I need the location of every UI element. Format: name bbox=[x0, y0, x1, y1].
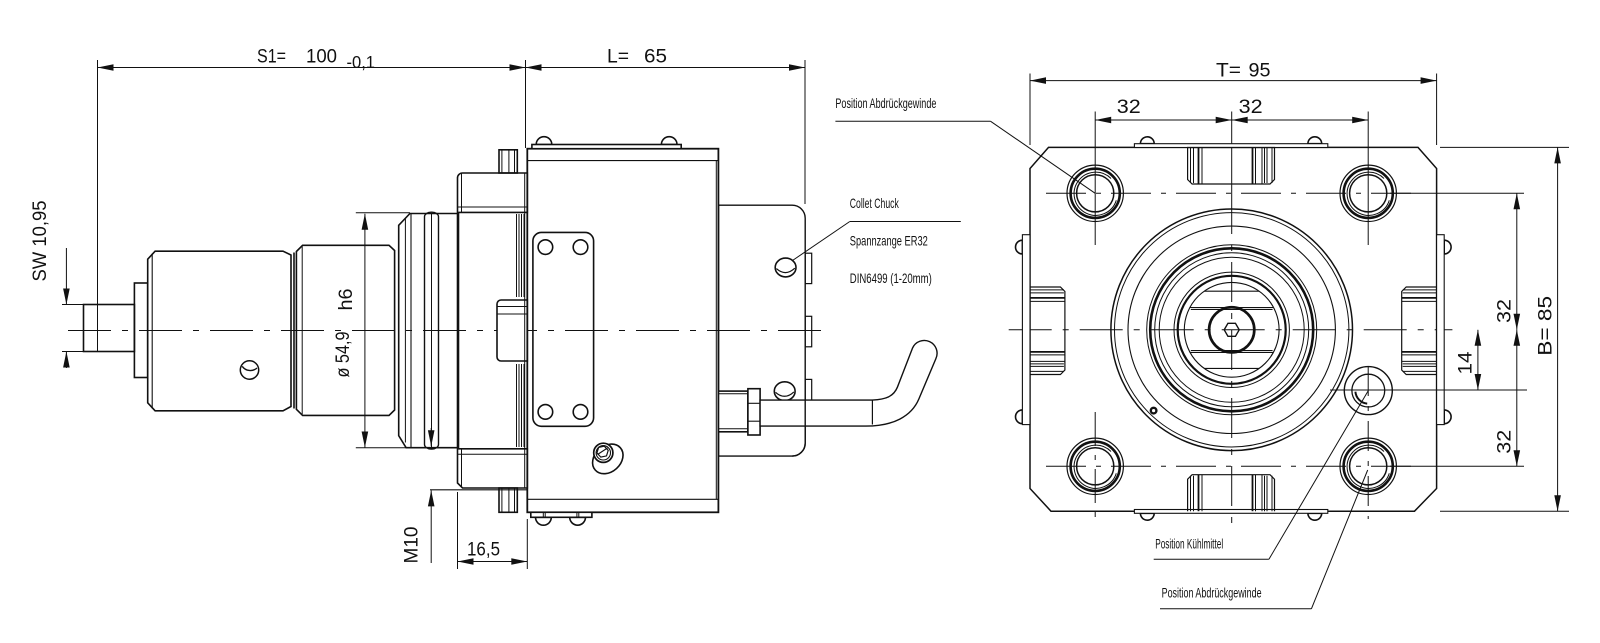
svg-text:L=: L= bbox=[607, 46, 629, 68]
svg-text:16,5: 16,5 bbox=[467, 540, 500, 561]
svg-text:-0,1: -0,1 bbox=[347, 52, 376, 72]
svg-text:95: 95 bbox=[1249, 60, 1271, 82]
svg-text:32: 32 bbox=[1494, 299, 1516, 323]
svg-text:100: 100 bbox=[306, 46, 337, 68]
svg-text:14: 14 bbox=[1455, 351, 1477, 374]
svg-text:S1=: S1= bbox=[257, 46, 286, 68]
svg-text:h6: h6 bbox=[336, 289, 357, 311]
svg-text:Position Abdrückgewinde: Position Abdrückgewinde bbox=[1162, 585, 1262, 600]
svg-text:Spannzange ER32: Spannzange ER32 bbox=[850, 234, 928, 249]
svg-text:SW 10,95: SW 10,95 bbox=[30, 201, 51, 282]
svg-text:Position Abdrückgewinde: Position Abdrückgewinde bbox=[835, 96, 936, 111]
svg-text:DIN6499 (1-20mm): DIN6499 (1-20mm) bbox=[850, 271, 932, 286]
svg-text:32: 32 bbox=[1239, 96, 1263, 118]
svg-text:65: 65 bbox=[644, 46, 667, 68]
svg-text:ø 54,9: ø 54,9 bbox=[333, 332, 354, 378]
svg-text:M10: M10 bbox=[402, 527, 423, 564]
svg-text:Position Kühlmittel: Position Kühlmittel bbox=[1155, 537, 1223, 552]
svg-text:T=: T= bbox=[1216, 60, 1241, 82]
svg-text:32: 32 bbox=[1117, 96, 1141, 118]
svg-text:B= 85: B= 85 bbox=[1535, 296, 1557, 356]
svg-text:Collet Chuck: Collet Chuck bbox=[850, 196, 899, 211]
svg-text:32: 32 bbox=[1494, 430, 1516, 454]
